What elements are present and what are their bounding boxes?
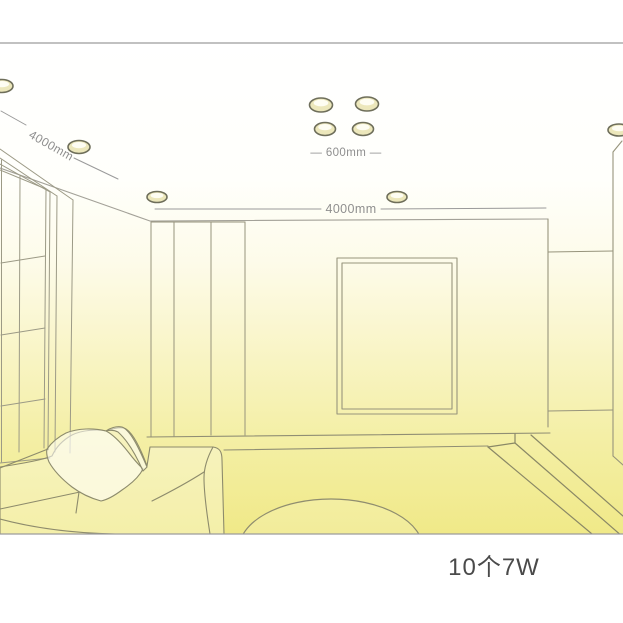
ceiling-light-icon [387,192,407,203]
light-spacing-dimension-label: — 600mm — [310,147,381,159]
ceiling-light-icon [608,124,623,136]
back-wall-dimension-label: 4000mm [325,202,376,216]
ceiling-light-icon [310,98,333,112]
dimension-lines [1,111,546,209]
power-summary-label: 10个7W [448,554,540,581]
window [0,149,73,463]
picture-frame [337,258,457,414]
ceiling-light-icon [147,192,167,203]
diagram-drawing: 4000mm — 600mm — 4000mm 10个7W [0,0,623,623]
ceiling-lights [0,80,623,203]
ceiling-light-icon [353,123,374,136]
ceiling-light-icon [315,123,336,136]
rug [239,499,423,599]
right-wall [548,141,623,465]
ceiling-edges [0,168,548,221]
floor-steps [488,434,623,537]
wardrobe-panels [151,222,245,437]
ceiling-light-icon [356,97,379,111]
room-lighting-diagram: 4000mm — 600mm — 4000mm 10个7W [0,0,623,623]
ceiling-light-icon [0,80,13,93]
sofa [0,427,224,534]
